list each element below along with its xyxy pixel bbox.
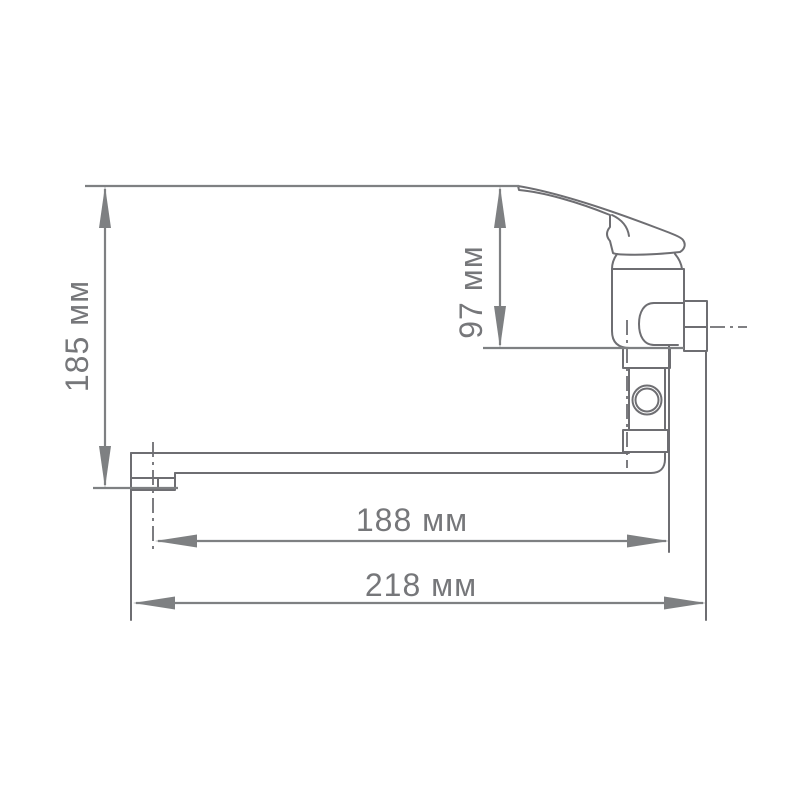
pipe-collar-top xyxy=(623,349,670,368)
label-spout-reach: 188 мм xyxy=(356,502,468,538)
technical-drawing: 185 мм 97 мм 188 мм 218 мм xyxy=(0,0,800,800)
diverter-screw-inner-circle xyxy=(636,389,659,412)
label-overall-length: 218 мм xyxy=(365,567,477,603)
spout-underside xyxy=(175,453,665,473)
arrow-188-left-icon xyxy=(155,535,197,548)
pipe-collar-bottom xyxy=(623,430,668,452)
dome-cap-left-edge xyxy=(612,254,617,269)
arrow-218-left-icon xyxy=(133,597,175,610)
handle-crease-line xyxy=(612,215,629,236)
handle-lever xyxy=(518,186,685,255)
faucet-outline xyxy=(131,186,707,620)
wall-horn xyxy=(639,303,684,345)
label-overall-height: 185 мм xyxy=(59,280,95,392)
arrow-185-down-icon xyxy=(99,446,111,488)
arrow-185-up-icon xyxy=(99,186,111,228)
diverter-screw-outer-circle xyxy=(633,386,662,415)
body-outline xyxy=(612,269,684,348)
faucet-dimension-drawing: 185 мм 97 мм 188 мм 218 мм xyxy=(0,0,800,800)
label-handle-height: 97 мм xyxy=(453,245,489,338)
arrow-97-down-icon xyxy=(494,306,506,348)
arrow-97-up-icon xyxy=(494,186,506,228)
arrow-218-right-icon xyxy=(664,597,706,610)
dimension-arrowheads xyxy=(99,186,706,610)
arrow-188-right-icon xyxy=(627,535,669,548)
dome-cap-right-edge xyxy=(675,254,682,269)
dimension-labels: 185 мм 97 мм 188 мм 218 мм xyxy=(59,245,489,603)
